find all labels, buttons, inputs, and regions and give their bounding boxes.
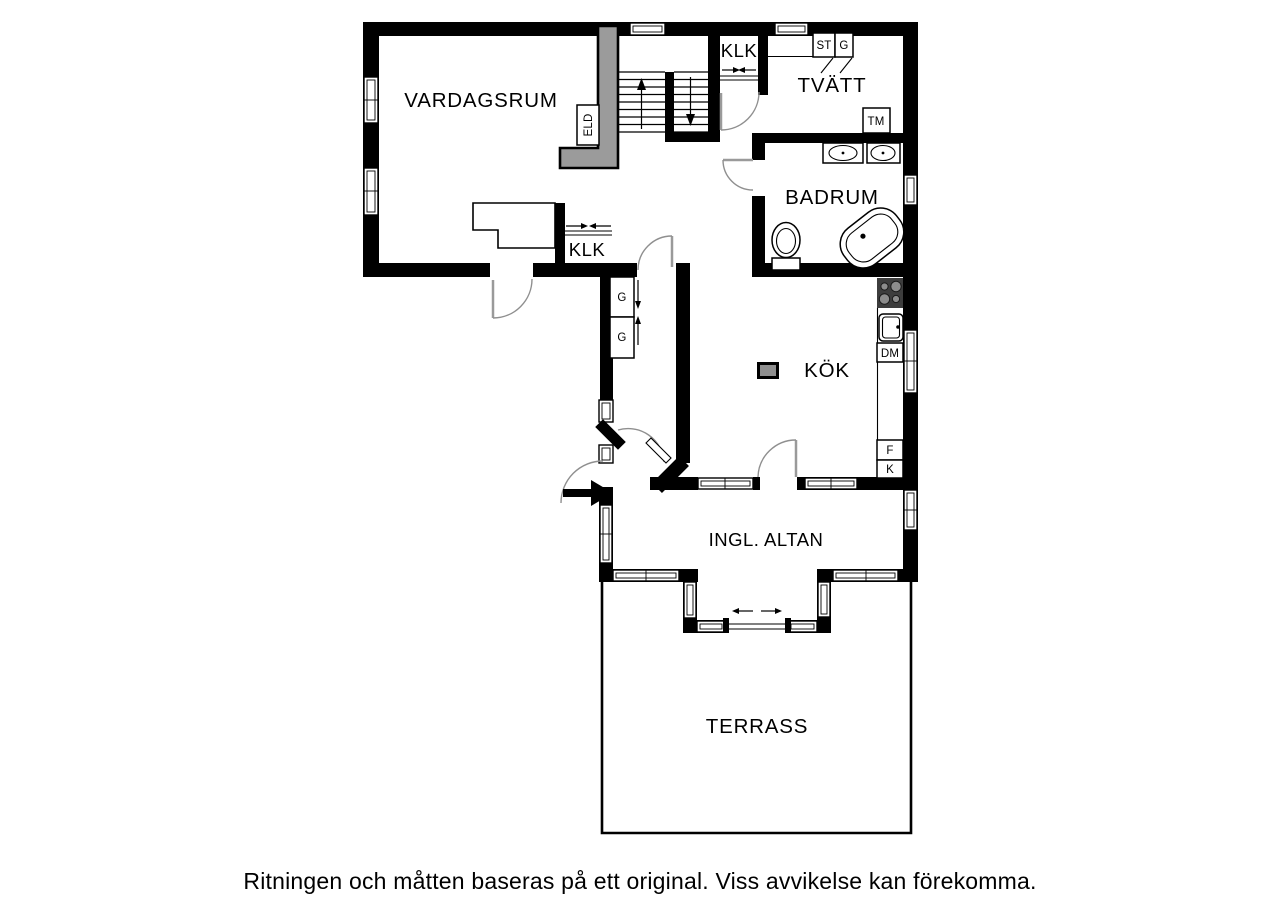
door-corridor bbox=[638, 236, 672, 270]
dishwasher: DM bbox=[877, 343, 903, 362]
wall-corridor-right bbox=[676, 263, 690, 463]
room-label-klk-upper: KLK bbox=[721, 40, 758, 61]
dm-label: DM bbox=[881, 348, 899, 360]
wall-klk-lower-left bbox=[555, 203, 565, 265]
k-label: K bbox=[886, 464, 894, 476]
wall-tvatt-left bbox=[758, 36, 768, 95]
entry-door-leaf bbox=[603, 427, 618, 442]
g-hall-2-label: G bbox=[617, 332, 626, 344]
window-altan-row-right bbox=[833, 570, 898, 581]
wall-right-exterior bbox=[903, 22, 918, 487]
windows bbox=[364, 23, 917, 632]
f-label: F bbox=[886, 445, 893, 457]
sliding-door-terrass bbox=[723, 608, 791, 633]
window-left-2 bbox=[364, 168, 378, 215]
stairs-up-arrow-icon bbox=[637, 78, 646, 129]
window-bay-right bbox=[818, 582, 830, 617]
door-badrum bbox=[723, 160, 753, 190]
window-altan-right bbox=[904, 490, 917, 530]
washbasin-2 bbox=[867, 143, 900, 163]
window-corridor-2 bbox=[599, 445, 613, 463]
wall-altan-top-b bbox=[753, 477, 760, 490]
closet-g-tvatt: G bbox=[835, 33, 853, 73]
staircase bbox=[618, 72, 708, 132]
window-altan-row-left bbox=[613, 570, 679, 581]
st-label: ST bbox=[816, 40, 831, 52]
room-label-terrass: TERRASS bbox=[706, 715, 808, 738]
closet-g-hall-2: G bbox=[610, 316, 641, 358]
g-tvatt-label: G bbox=[839, 40, 848, 52]
wall-badrum-left-top bbox=[752, 133, 765, 160]
door-vardagsrum-garden bbox=[493, 279, 532, 318]
eld-label: ELD bbox=[583, 114, 595, 137]
freezer: F bbox=[877, 440, 903, 460]
window-altan-top-2 bbox=[805, 478, 857, 489]
window-bay-left bbox=[684, 582, 696, 618]
room-label-vardagsrum: VARDAGSRUM bbox=[404, 89, 557, 112]
washbasin-1 bbox=[823, 143, 863, 163]
wall-stair-right bbox=[708, 36, 720, 142]
room-label-tvatt: TVÄTT bbox=[798, 74, 867, 97]
wall-vardagsrum-bottom-a bbox=[363, 263, 490, 277]
walls bbox=[363, 22, 918, 633]
kitchen-sink bbox=[879, 314, 903, 341]
wall-stair-bottom bbox=[665, 132, 720, 142]
window-bay-bottom-1 bbox=[697, 621, 725, 632]
fridge: K bbox=[877, 460, 903, 478]
sliding-door-klk-lower bbox=[565, 223, 612, 235]
toilet bbox=[772, 223, 800, 271]
closet-st: ST bbox=[813, 33, 835, 73]
window-top-stairs bbox=[630, 23, 665, 35]
wall-badrum-left-bottom bbox=[752, 196, 765, 267]
window-kok-right bbox=[904, 330, 917, 393]
closet-g-hall-1: G bbox=[610, 277, 641, 317]
chimney-wall bbox=[560, 26, 618, 168]
window-corridor-1 bbox=[599, 400, 613, 422]
wall-left bbox=[363, 22, 379, 277]
floorplan-page: ELD bbox=[0, 0, 1280, 909]
chimney: ELD bbox=[560, 26, 618, 168]
sliding-door-klk-upper bbox=[720, 67, 758, 80]
room-labels: VARDAGSRUM KLK TVÄTT BADRUM KLK KÖK INGL… bbox=[404, 40, 879, 738]
g-hall-1-label: G bbox=[617, 292, 626, 304]
window-badrum-right bbox=[904, 175, 917, 205]
wall-tvatt-badrum-divider bbox=[765, 133, 903, 143]
window-left-1 bbox=[364, 77, 378, 123]
window-top-tvatt bbox=[775, 23, 808, 35]
wall-stair-divider bbox=[665, 72, 674, 142]
room-label-ingl-altan: INGL. ALTAN bbox=[709, 529, 824, 550]
window-altan-left bbox=[600, 505, 612, 563]
inner-door-leaf bbox=[646, 438, 671, 463]
floorplan-drawing: ELD bbox=[0, 0, 1280, 909]
room-label-kok: KÖK bbox=[804, 359, 850, 382]
door-kok-altan bbox=[758, 440, 796, 477]
wall-vardagsrum-bottom-b bbox=[533, 263, 637, 277]
wall-altan-top-a bbox=[650, 477, 698, 490]
kitchen-vent-shaft bbox=[759, 364, 778, 378]
terrass-outline bbox=[602, 576, 911, 833]
disclaimer-text: Ritningen och måtten baseras på ett orig… bbox=[243, 868, 1036, 894]
stove bbox=[877, 278, 903, 308]
room-label-klk-lower: KLK bbox=[569, 239, 606, 260]
vardagsrum-alcove-outline bbox=[473, 203, 555, 248]
window-altan-top-1 bbox=[698, 478, 753, 489]
window-bay-bottom-2 bbox=[788, 621, 817, 632]
room-label-badrum: BADRUM bbox=[785, 186, 879, 209]
washing-machine: TM bbox=[863, 108, 890, 133]
tm-label: TM bbox=[867, 116, 884, 128]
door-tvatt bbox=[721, 92, 759, 130]
